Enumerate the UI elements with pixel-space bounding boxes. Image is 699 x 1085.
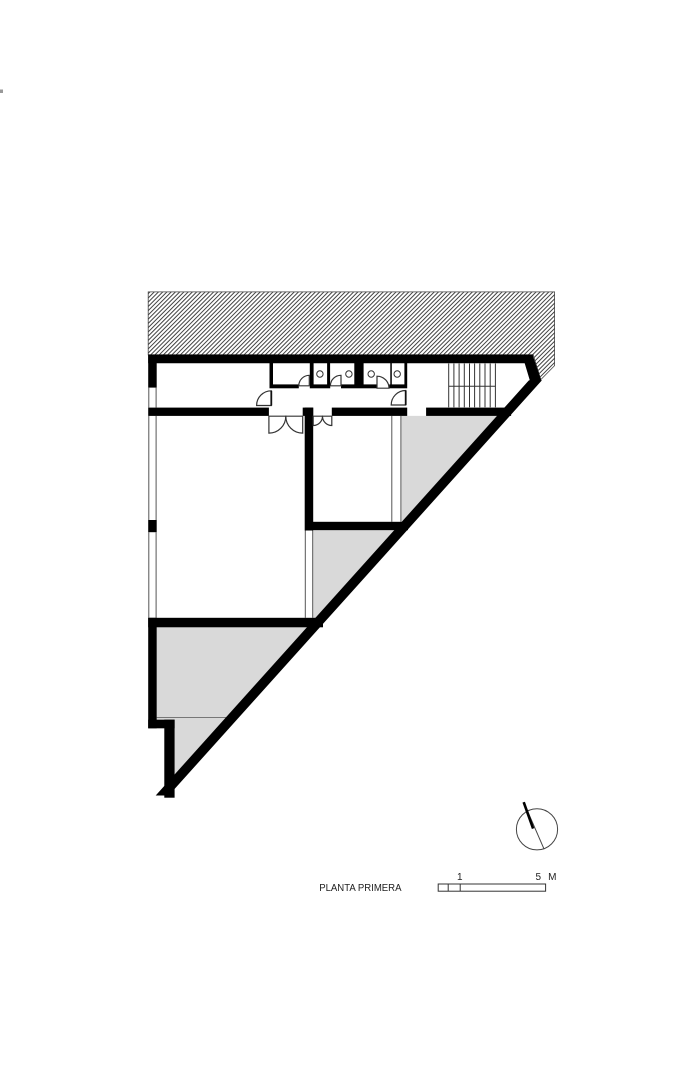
- svg-text:PLANTA PRIMERA: PLANTA PRIMERA: [319, 882, 401, 894]
- svg-text:1: 1: [457, 872, 463, 883]
